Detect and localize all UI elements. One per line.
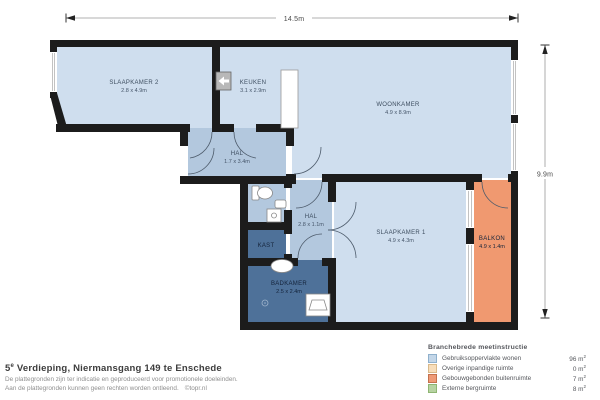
legend-label: Overige inpandige ruimte bbox=[442, 365, 513, 372]
legend-row-gebruiksoppervlakte: Gebruiksoppervlakte wonen 96 m2 bbox=[428, 354, 586, 364]
bathroom-sink-icon bbox=[271, 260, 293, 273]
legend-value-number: 7 bbox=[573, 376, 577, 383]
legend-unit-sup: 2 bbox=[583, 374, 586, 379]
room-slaapkamer1 bbox=[334, 180, 468, 324]
legend-label: Gebruiksoppervlakte wonen bbox=[442, 355, 521, 362]
kitchen-counter bbox=[281, 70, 298, 128]
legend-value-number: 96 bbox=[569, 356, 576, 363]
label-woonkamer-size: 4.9 x 8.9m bbox=[385, 110, 411, 116]
disclaimer-line-2: Aan de plattegronden kunnen geen rechten… bbox=[5, 385, 335, 394]
label-keuken-name: KEUKEN bbox=[240, 80, 266, 86]
legend-value: 96 m2 bbox=[569, 354, 586, 363]
boiler-icon bbox=[267, 209, 281, 222]
legend-value-number: 0 bbox=[573, 366, 577, 373]
legend-row-overige: Overige inpandige ruimte 0 m2 bbox=[428, 364, 586, 374]
label-slaapkamer2-name: SLAAPKAMER 2 bbox=[109, 80, 159, 86]
legend-value-number: 8 bbox=[573, 386, 577, 393]
legend-value: 7 m2 bbox=[573, 374, 586, 383]
room-balkon bbox=[472, 180, 512, 324]
label-hal1-name: HAL bbox=[231, 151, 244, 157]
disclaimer-line-1: De plattegronden zijn ter indicatie en g… bbox=[5, 376, 335, 385]
disclaimer-line-2-text: Aan de plattegronden kunnen geen rechten… bbox=[5, 385, 179, 392]
legend-value: 0 m2 bbox=[573, 364, 586, 373]
legend-unit-sup: 2 bbox=[583, 384, 586, 389]
label-hal2-size: 2.8 x 1.1m bbox=[298, 222, 324, 228]
room-slaapkamer2 bbox=[52, 44, 218, 128]
label-keuken-size: 3.1 x 2.9m bbox=[240, 88, 266, 94]
label-slaapkamer1-size: 4.9 x 4.3m bbox=[388, 238, 414, 244]
label-badkamer-name: BADKAMER bbox=[271, 281, 307, 287]
legend-unit-sup: 2 bbox=[583, 354, 586, 359]
label-slaapkamer1-name: SLAAPKAMER 1 bbox=[376, 230, 426, 236]
floorplan-page: 14.5m 9.9m SLAAPKAMER 2 2.8 x 4.9m KEUKE… bbox=[0, 0, 600, 400]
legend-row-externe: Externe bergruimte 8 m2 bbox=[428, 383, 586, 393]
label-woonkamer-name: WOONKAMER bbox=[376, 102, 420, 108]
legend-unit-sup: 2 bbox=[583, 364, 586, 369]
entrance-opening bbox=[180, 146, 188, 176]
label-kast-name: KAST bbox=[258, 243, 275, 249]
label-hal1-size: 1.7 x 3.4m bbox=[224, 159, 250, 165]
disclaimer: De plattegronden zijn ter indicatie en g… bbox=[5, 376, 335, 393]
hand-basin-icon bbox=[275, 200, 286, 208]
address-block: 5e Verdieping, Niermansgang 149 te Ensch… bbox=[5, 363, 335, 393]
room-hal-2 bbox=[290, 180, 332, 260]
page-title: 5e Verdieping, Niermansgang 149 te Ensch… bbox=[5, 363, 335, 374]
legend-swatch-orange bbox=[428, 374, 437, 383]
legend-swatch-tan bbox=[428, 364, 437, 373]
legend: Branchebrede meetinstructie Gebruiksoppe… bbox=[428, 344, 586, 393]
label-balkon-name: BALKON bbox=[479, 236, 505, 242]
legend-title: Branchebrede meetinstructie bbox=[428, 344, 586, 351]
address-text: Verdieping, Niermansgang 149 te Enschede bbox=[14, 363, 222, 374]
legend-swatch-blue bbox=[428, 354, 437, 363]
credit-watermark: ©topr.nl bbox=[185, 385, 207, 392]
legend-value: 8 m2 bbox=[573, 384, 586, 393]
floorplan-drawing: 14.5m 9.9m SLAAPKAMER 2 2.8 x 4.9m KEUKE… bbox=[0, 0, 600, 400]
legend-label: Gebouwgebonden buitenruimte bbox=[442, 375, 531, 382]
toilet-icon bbox=[252, 186, 273, 200]
legend-label: Externe bergruimte bbox=[442, 385, 496, 392]
legend-row-gebouwgebonden: Gebouwgebonden buitenruimte 7 m2 bbox=[428, 374, 586, 384]
shower-icon bbox=[306, 294, 330, 316]
dimension-height-label: 9.9m bbox=[537, 172, 553, 179]
appliance-icon bbox=[216, 72, 231, 90]
legend-swatch-green bbox=[428, 384, 437, 393]
label-badkamer-size: 2.5 x 2.4m bbox=[276, 289, 302, 295]
label-hal2-name: HAL bbox=[305, 214, 318, 220]
dimension-width-label: 14.5m bbox=[284, 16, 304, 23]
label-slaapkamer2-size: 2.8 x 4.9m bbox=[121, 88, 147, 94]
label-balkon-size: 4.9 x 1.4m bbox=[479, 244, 505, 250]
